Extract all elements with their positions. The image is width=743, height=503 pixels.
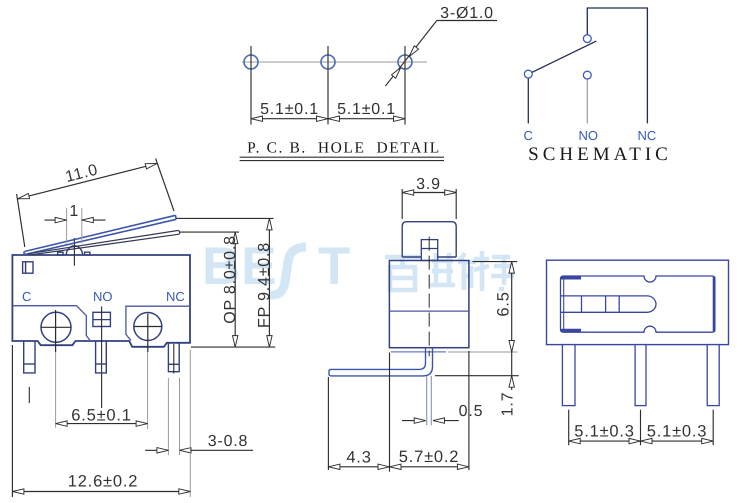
svg-text:C: C (22, 289, 31, 304)
svg-text:5.7±0.2: 5.7±0.2 (399, 448, 460, 466)
svg-text:5.1±0.3: 5.1±0.3 (647, 423, 708, 441)
svg-text:12.6±0.2: 12.6±0.2 (68, 473, 139, 491)
svg-text:1: 1 (69, 203, 79, 220)
svg-text:4.3: 4.3 (346, 449, 371, 467)
svg-text:NO: NO (579, 128, 599, 143)
svg-text:FP 9.4±0.8: FP 9.4±0.8 (256, 242, 273, 328)
svg-text:NO: NO (93, 289, 113, 304)
svg-text:3-Ø1.0: 3-Ø1.0 (440, 5, 494, 22)
svg-text:3-0.8: 3-0.8 (208, 433, 248, 450)
svg-text:5.1±0.3: 5.1±0.3 (574, 423, 635, 441)
svg-text:6.5±0.1: 6.5±0.1 (71, 407, 132, 425)
svg-text:5.1±0.1: 5.1±0.1 (337, 101, 396, 118)
svg-text:1.7: 1.7 (500, 392, 517, 417)
svg-text:C: C (524, 128, 533, 143)
svg-text:0.5: 0.5 (459, 403, 484, 420)
svg-text:5.1±0.1: 5.1±0.1 (260, 101, 319, 118)
svg-text:OP 8.0±0.8: OP 8.0±0.8 (222, 235, 239, 324)
svg-text:3.9: 3.9 (416, 176, 441, 193)
svg-text:SCHEMATIC: SCHEMATIC (528, 144, 672, 165)
svg-text:P. C. B. HOLE DETAIL: P. C. B. HOLE DETAIL (247, 140, 441, 157)
svg-text:6.5: 6.5 (495, 291, 513, 316)
svg-text:NC: NC (638, 128, 657, 143)
svg-text:NC: NC (166, 289, 185, 304)
svg-text:T: T (318, 237, 350, 296)
